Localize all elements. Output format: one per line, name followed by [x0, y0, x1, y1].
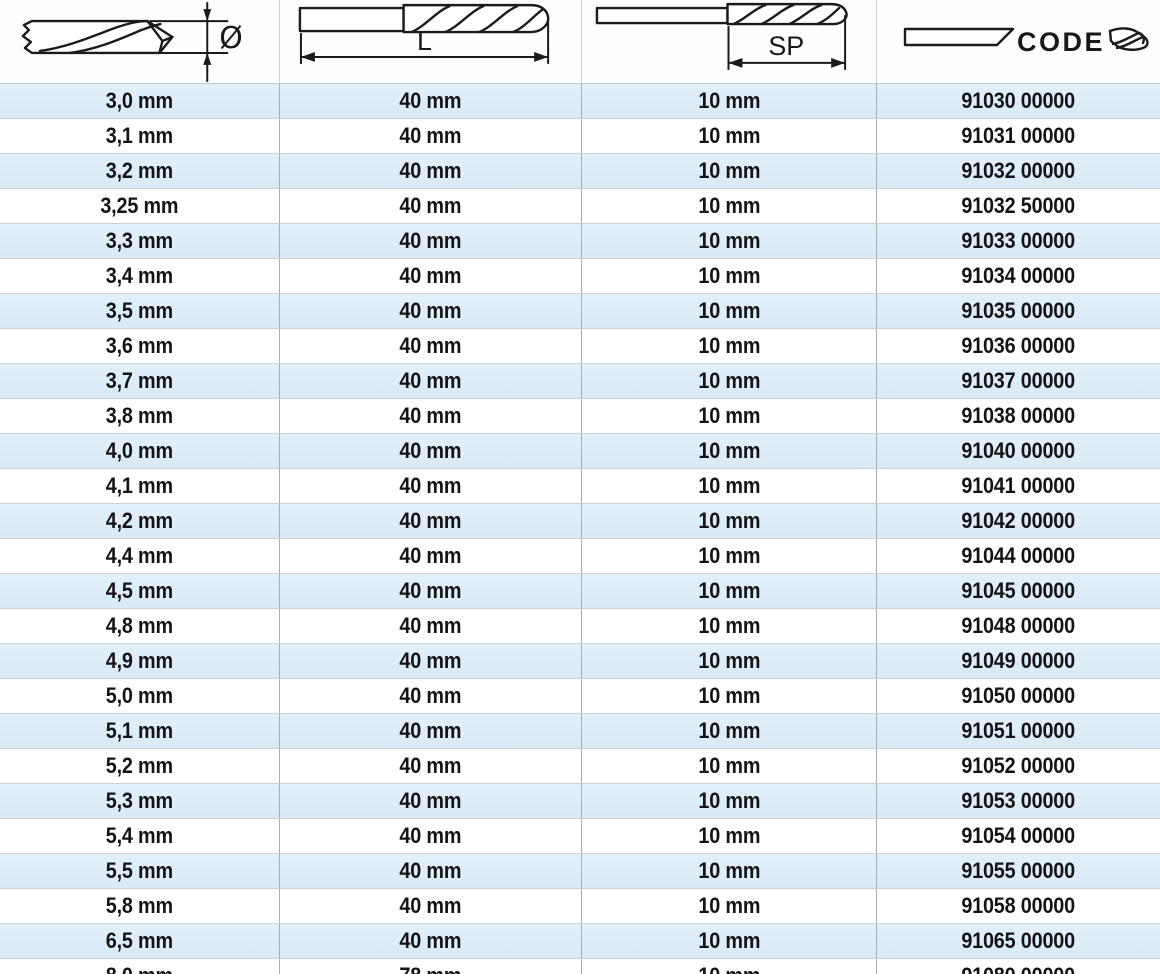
code-cell: 91055 00000 — [877, 854, 1160, 888]
spiral-length-value: 10 mm — [698, 578, 760, 604]
spiral-length-cell: 10 mm — [582, 539, 877, 573]
code-value: 91058 00000 — [962, 893, 1076, 919]
table-row: 3,0 mm 40 mm 10 mm 91030 00000 — [0, 84, 1160, 119]
code-cell: 91052 00000 — [877, 749, 1160, 783]
diameter-value: 4,9 mm — [106, 648, 173, 674]
code-cell: 91045 00000 — [877, 574, 1160, 608]
table-row: 5,1 mm 40 mm 10 mm 91051 00000 — [0, 714, 1160, 749]
spiral-length-cell: 10 mm — [582, 644, 877, 678]
diameter-value: 3,8 mm — [106, 403, 173, 429]
code-value: 91041 00000 — [962, 473, 1076, 499]
diameter-cell: 8,0 mm — [0, 959, 280, 974]
code-value: 91042 00000 — [962, 508, 1076, 534]
table-row: 5,4 mm 40 mm 10 mm 91054 00000 — [0, 819, 1160, 854]
length-cell: 40 mm — [280, 819, 582, 853]
diameter-cell: 5,2 mm — [0, 749, 280, 783]
diameter-value: 6,5 mm — [106, 928, 173, 954]
drill-code-icon: CODE — [877, 0, 1160, 84]
length-cell: 40 mm — [280, 784, 582, 818]
length-cell: 40 mm — [280, 329, 582, 363]
code-value: 91050 00000 — [962, 683, 1076, 709]
column-header-length: L — [280, 0, 582, 83]
drill-diameter-icon: Ø — [0, 0, 279, 84]
code-value: 91054 00000 — [962, 823, 1076, 849]
table-row: 3,7 mm 40 mm 10 mm 91037 00000 — [0, 364, 1160, 399]
spiral-length-cell: 10 mm — [582, 469, 877, 503]
spiral-length-cell: 10 mm — [582, 259, 877, 293]
spiral-length-value: 10 mm — [698, 473, 760, 499]
code-value: 91035 00000 — [962, 298, 1076, 324]
table-row: 3,4 mm 40 mm 10 mm 91034 00000 — [0, 259, 1160, 294]
table-row: 4,4 mm 40 mm 10 mm 91044 00000 — [0, 539, 1160, 574]
length-cell: 40 mm — [280, 224, 582, 258]
table-row: 3,3 mm 40 mm 10 mm 91033 00000 — [0, 224, 1160, 259]
spiral-length-cell: 10 mm — [582, 364, 877, 398]
code-value: 91031 00000 — [962, 123, 1076, 149]
table-row: 8,0 mm 78 mm 10 mm 91080 00000 — [0, 959, 1160, 974]
length-cell: 40 mm — [280, 399, 582, 433]
code-cell: 91048 00000 — [877, 609, 1160, 643]
diameter-cell: 6,5 mm — [0, 924, 280, 958]
length-value: 40 mm — [400, 543, 462, 569]
length-value: 40 mm — [400, 123, 462, 149]
spiral-length-value: 10 mm — [698, 88, 760, 114]
length-cell: 40 mm — [280, 749, 582, 783]
diameter-value: 4,5 mm — [106, 578, 173, 604]
length-cell: 40 mm — [280, 434, 582, 468]
diameter-cell: 5,3 mm — [0, 784, 280, 818]
diameter-cell: 5,4 mm — [0, 819, 280, 853]
length-cell: 78 mm — [280, 959, 582, 974]
length-value: 40 mm — [400, 403, 462, 429]
code-cell: 91058 00000 — [877, 889, 1160, 923]
spiral-length-value: 10 mm — [698, 788, 760, 814]
spiral-length-value: 10 mm — [698, 858, 760, 884]
spiral-length-cell: 10 mm — [582, 609, 877, 643]
code-value: 91030 00000 — [962, 88, 1076, 114]
code-value: 91044 00000 — [962, 543, 1076, 569]
code-value: 91048 00000 — [962, 613, 1076, 639]
code-cell: 91065 00000 — [877, 924, 1160, 958]
code-value: 91080 00000 — [962, 963, 1076, 974]
diameter-value: 3,3 mm — [106, 228, 173, 254]
diameter-cell: 3,7 mm — [0, 364, 280, 398]
spiral-length-cell: 10 mm — [582, 819, 877, 853]
diameter-value: 4,4 mm — [106, 543, 173, 569]
spiral-length-cell: 10 mm — [582, 714, 877, 748]
length-cell: 40 mm — [280, 574, 582, 608]
spiral-length-cell: 10 mm — [582, 329, 877, 363]
code-cell: 91049 00000 — [877, 644, 1160, 678]
length-value: 40 mm — [400, 158, 462, 184]
code-value: 91055 00000 — [962, 858, 1076, 884]
length-value: 40 mm — [400, 88, 462, 114]
spiral-length-cell: 10 mm — [582, 504, 877, 538]
code-cell: 91044 00000 — [877, 539, 1160, 573]
code-value: 91045 00000 — [962, 578, 1076, 604]
code-value: 91065 00000 — [962, 928, 1076, 954]
code-cell: 91080 00000 — [877, 959, 1160, 974]
spiral-length-value: 10 mm — [698, 893, 760, 919]
length-label: L — [417, 25, 432, 55]
spiral-length-value: 10 mm — [698, 543, 760, 569]
table-row: 3,1 mm 40 mm 10 mm 91031 00000 — [0, 119, 1160, 154]
table-row: 4,8 mm 40 mm 10 mm 91048 00000 — [0, 609, 1160, 644]
diameter-cell: 5,0 mm — [0, 679, 280, 713]
length-value: 40 mm — [400, 683, 462, 709]
length-value: 40 mm — [400, 718, 462, 744]
spiral-length-value: 10 mm — [698, 333, 760, 359]
code-cell: 91036 00000 — [877, 329, 1160, 363]
length-cell: 40 mm — [280, 364, 582, 398]
spiral-length-value: 10 mm — [698, 368, 760, 394]
spiral-length-value: 10 mm — [698, 193, 760, 219]
diameter-value: 5,0 mm — [106, 683, 173, 709]
length-value: 40 mm — [400, 788, 462, 814]
diameter-cell: 3,6 mm — [0, 329, 280, 363]
spiral-length-label: SP — [768, 30, 804, 60]
code-cell: 91031 00000 — [877, 119, 1160, 153]
diameter-value: 5,3 mm — [106, 788, 173, 814]
diameter-value: 4,8 mm — [106, 613, 173, 639]
table-row: 5,5 mm 40 mm 10 mm 91055 00000 — [0, 854, 1160, 889]
length-value: 40 mm — [400, 438, 462, 464]
code-cell: 91034 00000 — [877, 259, 1160, 293]
table-row: 5,2 mm 40 mm 10 mm 91052 00000 — [0, 749, 1160, 784]
diameter-value: 3,0 mm — [106, 88, 173, 114]
length-cell: 40 mm — [280, 854, 582, 888]
column-header-code: CODE — [877, 0, 1160, 83]
code-value: 91049 00000 — [962, 648, 1076, 674]
code-cell: 91041 00000 — [877, 469, 1160, 503]
diameter-value: 3,4 mm — [106, 263, 173, 289]
code-value: 91040 00000 — [962, 438, 1076, 464]
length-value: 40 mm — [400, 893, 462, 919]
spiral-length-cell: 10 mm — [582, 434, 877, 468]
length-cell: 40 mm — [280, 679, 582, 713]
table-row: 4,5 mm 40 mm 10 mm 91045 00000 — [0, 574, 1160, 609]
diameter-value: 5,1 mm — [106, 718, 173, 744]
length-value: 40 mm — [400, 613, 462, 639]
spiral-length-cell: 10 mm — [582, 679, 877, 713]
length-value: 40 mm — [400, 858, 462, 884]
diameter-cell: 4,4 mm — [0, 539, 280, 573]
code-cell: 91033 00000 — [877, 224, 1160, 258]
spiral-length-value: 10 mm — [698, 403, 760, 429]
length-cell: 40 mm — [280, 539, 582, 573]
column-header-spiral-length: SP — [582, 0, 877, 83]
code-value: 91034 00000 — [962, 263, 1076, 289]
length-cell: 40 mm — [280, 294, 582, 328]
table-row: 4,2 mm 40 mm 10 mm 91042 00000 — [0, 504, 1160, 539]
length-cell: 40 mm — [280, 154, 582, 188]
length-value: 78 mm — [400, 963, 462, 974]
table-row: 3,6 mm 40 mm 10 mm 91036 00000 — [0, 329, 1160, 364]
table-row: 4,9 mm 40 mm 10 mm 91049 00000 — [0, 644, 1160, 679]
drill-bit-catalog-table: Ø L — [0, 0, 1160, 974]
code-value: 91051 00000 — [962, 718, 1076, 744]
length-cell: 40 mm — [280, 84, 582, 118]
length-cell: 40 mm — [280, 504, 582, 538]
code-value: 91052 00000 — [962, 753, 1076, 779]
length-value: 40 mm — [400, 228, 462, 254]
code-cell: 91032 00000 — [877, 154, 1160, 188]
drill-spiral-icon: SP — [582, 0, 876, 84]
spiral-length-cell: 10 mm — [582, 119, 877, 153]
code-value: 91038 00000 — [962, 403, 1076, 429]
table-row: 6,5 mm 40 mm 10 mm 91065 00000 — [0, 924, 1160, 959]
diameter-value: 4,2 mm — [106, 508, 173, 534]
code-cell: 91032 50000 — [877, 189, 1160, 223]
length-value: 40 mm — [400, 473, 462, 499]
spiral-length-value: 10 mm — [698, 613, 760, 639]
spiral-length-value: 10 mm — [698, 683, 760, 709]
diameter-value: 8,0 mm — [106, 963, 173, 974]
diameter-cell: 3,3 mm — [0, 224, 280, 258]
code-cell: 91053 00000 — [877, 784, 1160, 818]
code-value: 91033 00000 — [962, 228, 1076, 254]
length-cell: 40 mm — [280, 889, 582, 923]
diameter-value: 4,0 mm — [106, 438, 173, 464]
spiral-length-cell: 10 mm — [582, 294, 877, 328]
column-header-diameter: Ø — [0, 0, 280, 83]
spiral-length-value: 10 mm — [698, 438, 760, 464]
table-row: 5,3 mm 40 mm 10 mm 91053 00000 — [0, 784, 1160, 819]
diameter-cell: 3,0 mm — [0, 84, 280, 118]
spiral-length-value: 10 mm — [698, 508, 760, 534]
length-value: 40 mm — [400, 753, 462, 779]
table-row: 4,1 mm 40 mm 10 mm 91041 00000 — [0, 469, 1160, 504]
length-value: 40 mm — [400, 648, 462, 674]
spiral-length-cell: 10 mm — [582, 889, 877, 923]
length-value: 40 mm — [400, 298, 462, 324]
diameter-cell: 3,4 mm — [0, 259, 280, 293]
diameter-value: 3,6 mm — [106, 333, 173, 359]
code-cell: 91030 00000 — [877, 84, 1160, 118]
spiral-length-cell: 10 mm — [582, 224, 877, 258]
length-value: 40 mm — [400, 263, 462, 289]
length-cell: 40 mm — [280, 189, 582, 223]
spiral-length-cell: 10 mm — [582, 784, 877, 818]
code-value: 91032 00000 — [962, 158, 1076, 184]
length-cell: 40 mm — [280, 714, 582, 748]
spiral-length-value: 10 mm — [698, 263, 760, 289]
diameter-cell: 3,1 mm — [0, 119, 280, 153]
length-value: 40 mm — [400, 578, 462, 604]
code-cell: 91042 00000 — [877, 504, 1160, 538]
code-cell: 91037 00000 — [877, 364, 1160, 398]
spiral-length-cell: 10 mm — [582, 399, 877, 433]
diameter-symbol-label: Ø — [219, 20, 243, 55]
code-label: CODE — [1017, 27, 1105, 57]
length-value: 40 mm — [400, 823, 462, 849]
diameter-cell: 4,2 mm — [0, 504, 280, 538]
diameter-cell: 5,5 mm — [0, 854, 280, 888]
code-cell: 91051 00000 — [877, 714, 1160, 748]
diameter-cell: 3,8 mm — [0, 399, 280, 433]
drill-length-icon: L — [280, 0, 581, 84]
code-cell: 91050 00000 — [877, 679, 1160, 713]
table-row: 3,8 mm 40 mm 10 mm 91038 00000 — [0, 399, 1160, 434]
diameter-value: 5,2 mm — [106, 753, 173, 779]
code-value: 91053 00000 — [962, 788, 1076, 814]
diameter-cell: 3,5 mm — [0, 294, 280, 328]
spiral-length-cell: 10 mm — [582, 574, 877, 608]
table-body: 3,0 mm 40 mm 10 mm 91030 00000 3,1 mm 40… — [0, 84, 1160, 974]
code-cell: 91040 00000 — [877, 434, 1160, 468]
code-cell: 91054 00000 — [877, 819, 1160, 853]
table-row: 4,0 mm 40 mm 10 mm 91040 00000 — [0, 434, 1160, 469]
code-value: 91037 00000 — [962, 368, 1076, 394]
diameter-cell: 3,25 mm — [0, 189, 280, 223]
spiral-length-value: 10 mm — [698, 718, 760, 744]
length-value: 40 mm — [400, 368, 462, 394]
diameter-value: 5,4 mm — [106, 823, 173, 849]
spiral-length-value: 10 mm — [698, 158, 760, 184]
length-cell: 40 mm — [280, 609, 582, 643]
spiral-length-value: 10 mm — [698, 123, 760, 149]
spiral-length-value: 10 mm — [698, 648, 760, 674]
code-value: 91032 50000 — [962, 193, 1076, 219]
spiral-length-cell: 10 mm — [582, 924, 877, 958]
diameter-value: 3,25 mm — [101, 193, 179, 219]
length-value: 40 mm — [400, 193, 462, 219]
diameter-cell: 5,1 mm — [0, 714, 280, 748]
code-cell: 91038 00000 — [877, 399, 1160, 433]
spiral-length-value: 10 mm — [698, 928, 760, 954]
spiral-length-value: 10 mm — [698, 228, 760, 254]
diameter-cell: 5,8 mm — [0, 889, 280, 923]
table-row: 5,0 mm 40 mm 10 mm 91050 00000 — [0, 679, 1160, 714]
table-row: 3,2 mm 40 mm 10 mm 91032 00000 — [0, 154, 1160, 189]
spiral-length-value: 10 mm — [698, 753, 760, 779]
diameter-value: 3,5 mm — [106, 298, 173, 324]
diameter-value: 4,1 mm — [106, 473, 173, 499]
length-cell: 40 mm — [280, 469, 582, 503]
diameter-value: 3,7 mm — [106, 368, 173, 394]
spiral-length-cell: 10 mm — [582, 749, 877, 783]
table-header: Ø L — [0, 0, 1160, 84]
diameter-cell: 4,9 mm — [0, 644, 280, 678]
table-row: 5,8 mm 40 mm 10 mm 91058 00000 — [0, 889, 1160, 924]
diameter-cell: 4,5 mm — [0, 574, 280, 608]
length-value: 40 mm — [400, 928, 462, 954]
diameter-cell: 4,0 mm — [0, 434, 280, 468]
diameter-value: 5,5 mm — [106, 858, 173, 884]
length-value: 40 mm — [400, 333, 462, 359]
spiral-length-value: 10 mm — [698, 963, 760, 974]
length-value: 40 mm — [400, 508, 462, 534]
spiral-length-cell: 10 mm — [582, 959, 877, 974]
spiral-length-cell: 10 mm — [582, 189, 877, 223]
diameter-cell: 4,1 mm — [0, 469, 280, 503]
spiral-length-cell: 10 mm — [582, 84, 877, 118]
diameter-value: 5,8 mm — [106, 893, 173, 919]
code-cell: 91035 00000 — [877, 294, 1160, 328]
diameter-cell: 4,8 mm — [0, 609, 280, 643]
length-cell: 40 mm — [280, 259, 582, 293]
diameter-value: 3,1 mm — [106, 123, 173, 149]
spiral-length-value: 10 mm — [698, 298, 760, 324]
table-row: 3,5 mm 40 mm 10 mm 91035 00000 — [0, 294, 1160, 329]
length-cell: 40 mm — [280, 644, 582, 678]
length-cell: 40 mm — [280, 119, 582, 153]
spiral-length-cell: 10 mm — [582, 154, 877, 188]
spiral-length-cell: 10 mm — [582, 854, 877, 888]
diameter-cell: 3,2 mm — [0, 154, 280, 188]
diameter-value: 3,2 mm — [106, 158, 173, 184]
length-cell: 40 mm — [280, 924, 582, 958]
spiral-length-value: 10 mm — [698, 823, 760, 849]
table-row: 3,25 mm 40 mm 10 mm 91032 50000 — [0, 189, 1160, 224]
code-value: 91036 00000 — [962, 333, 1076, 359]
